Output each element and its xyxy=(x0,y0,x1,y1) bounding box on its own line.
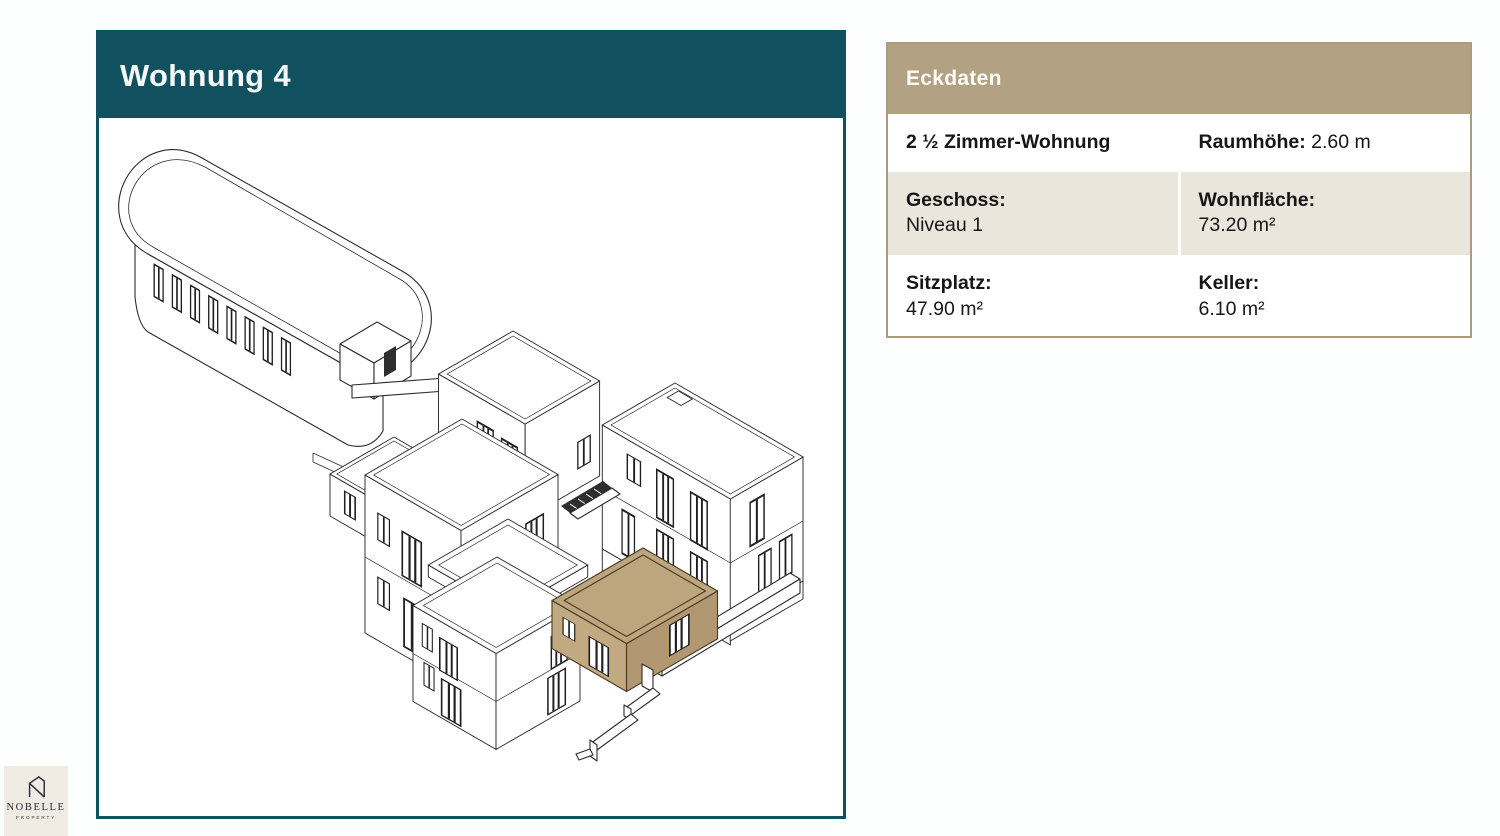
logo-name: NOBELLE xyxy=(6,802,65,813)
wohnflaeche-label: Wohnfläche: xyxy=(1199,188,1461,214)
eckdaten-card: Eckdaten 2 ½ Zimmer-Wohnung Raumhöhe: 2.… xyxy=(886,42,1472,338)
geschoss-value: Niveau 1 xyxy=(906,213,1168,239)
geschoss-label: Geschoss: xyxy=(906,188,1168,214)
eckdaten-header: Eckdaten xyxy=(888,44,1470,114)
logo-house-icon xyxy=(25,775,47,799)
plan-panel: Wohnung 4 xyxy=(96,30,846,819)
cell-geschoss: Geschoss: Niveau 1 xyxy=(888,172,1178,255)
logo-tagline: PROPERTY xyxy=(16,815,56,820)
wohnflaeche-value: 73.20 m² xyxy=(1199,213,1461,239)
cell-raumhoehe: Raumhöhe: 2.60 m xyxy=(1181,117,1471,169)
building-isometric-drawing xyxy=(99,118,843,816)
cell-zimmer: 2 ½ Zimmer-Wohnung xyxy=(888,117,1178,169)
company-logo: NOBELLE PROPERTY xyxy=(4,766,68,836)
page-title: Wohnung 4 xyxy=(99,33,843,118)
raumhoehe-label: Raumhöhe: xyxy=(1199,131,1312,153)
cell-wohnflaeche: Wohnfläche: 73.20 m² xyxy=(1181,172,1471,255)
sitzplatz-value: 47.90 m² xyxy=(906,297,1168,323)
building-long-wing xyxy=(119,150,432,447)
expose-page: Wohnung 4 xyxy=(0,0,1500,836)
zimmer-label: 2 ½ Zimmer-Wohnung xyxy=(906,131,1110,153)
keller-value: 6.10 m² xyxy=(1199,297,1461,323)
keller-label: Keller: xyxy=(1199,271,1461,297)
cell-sitzplatz: Sitzplatz: 47.90 m² xyxy=(888,258,1178,335)
raumhoehe-value: 2.60 m xyxy=(1311,131,1371,153)
sitzplatz-label: Sitzplatz: xyxy=(906,271,1168,297)
cell-keller: Keller: 6.10 m² xyxy=(1181,258,1471,335)
